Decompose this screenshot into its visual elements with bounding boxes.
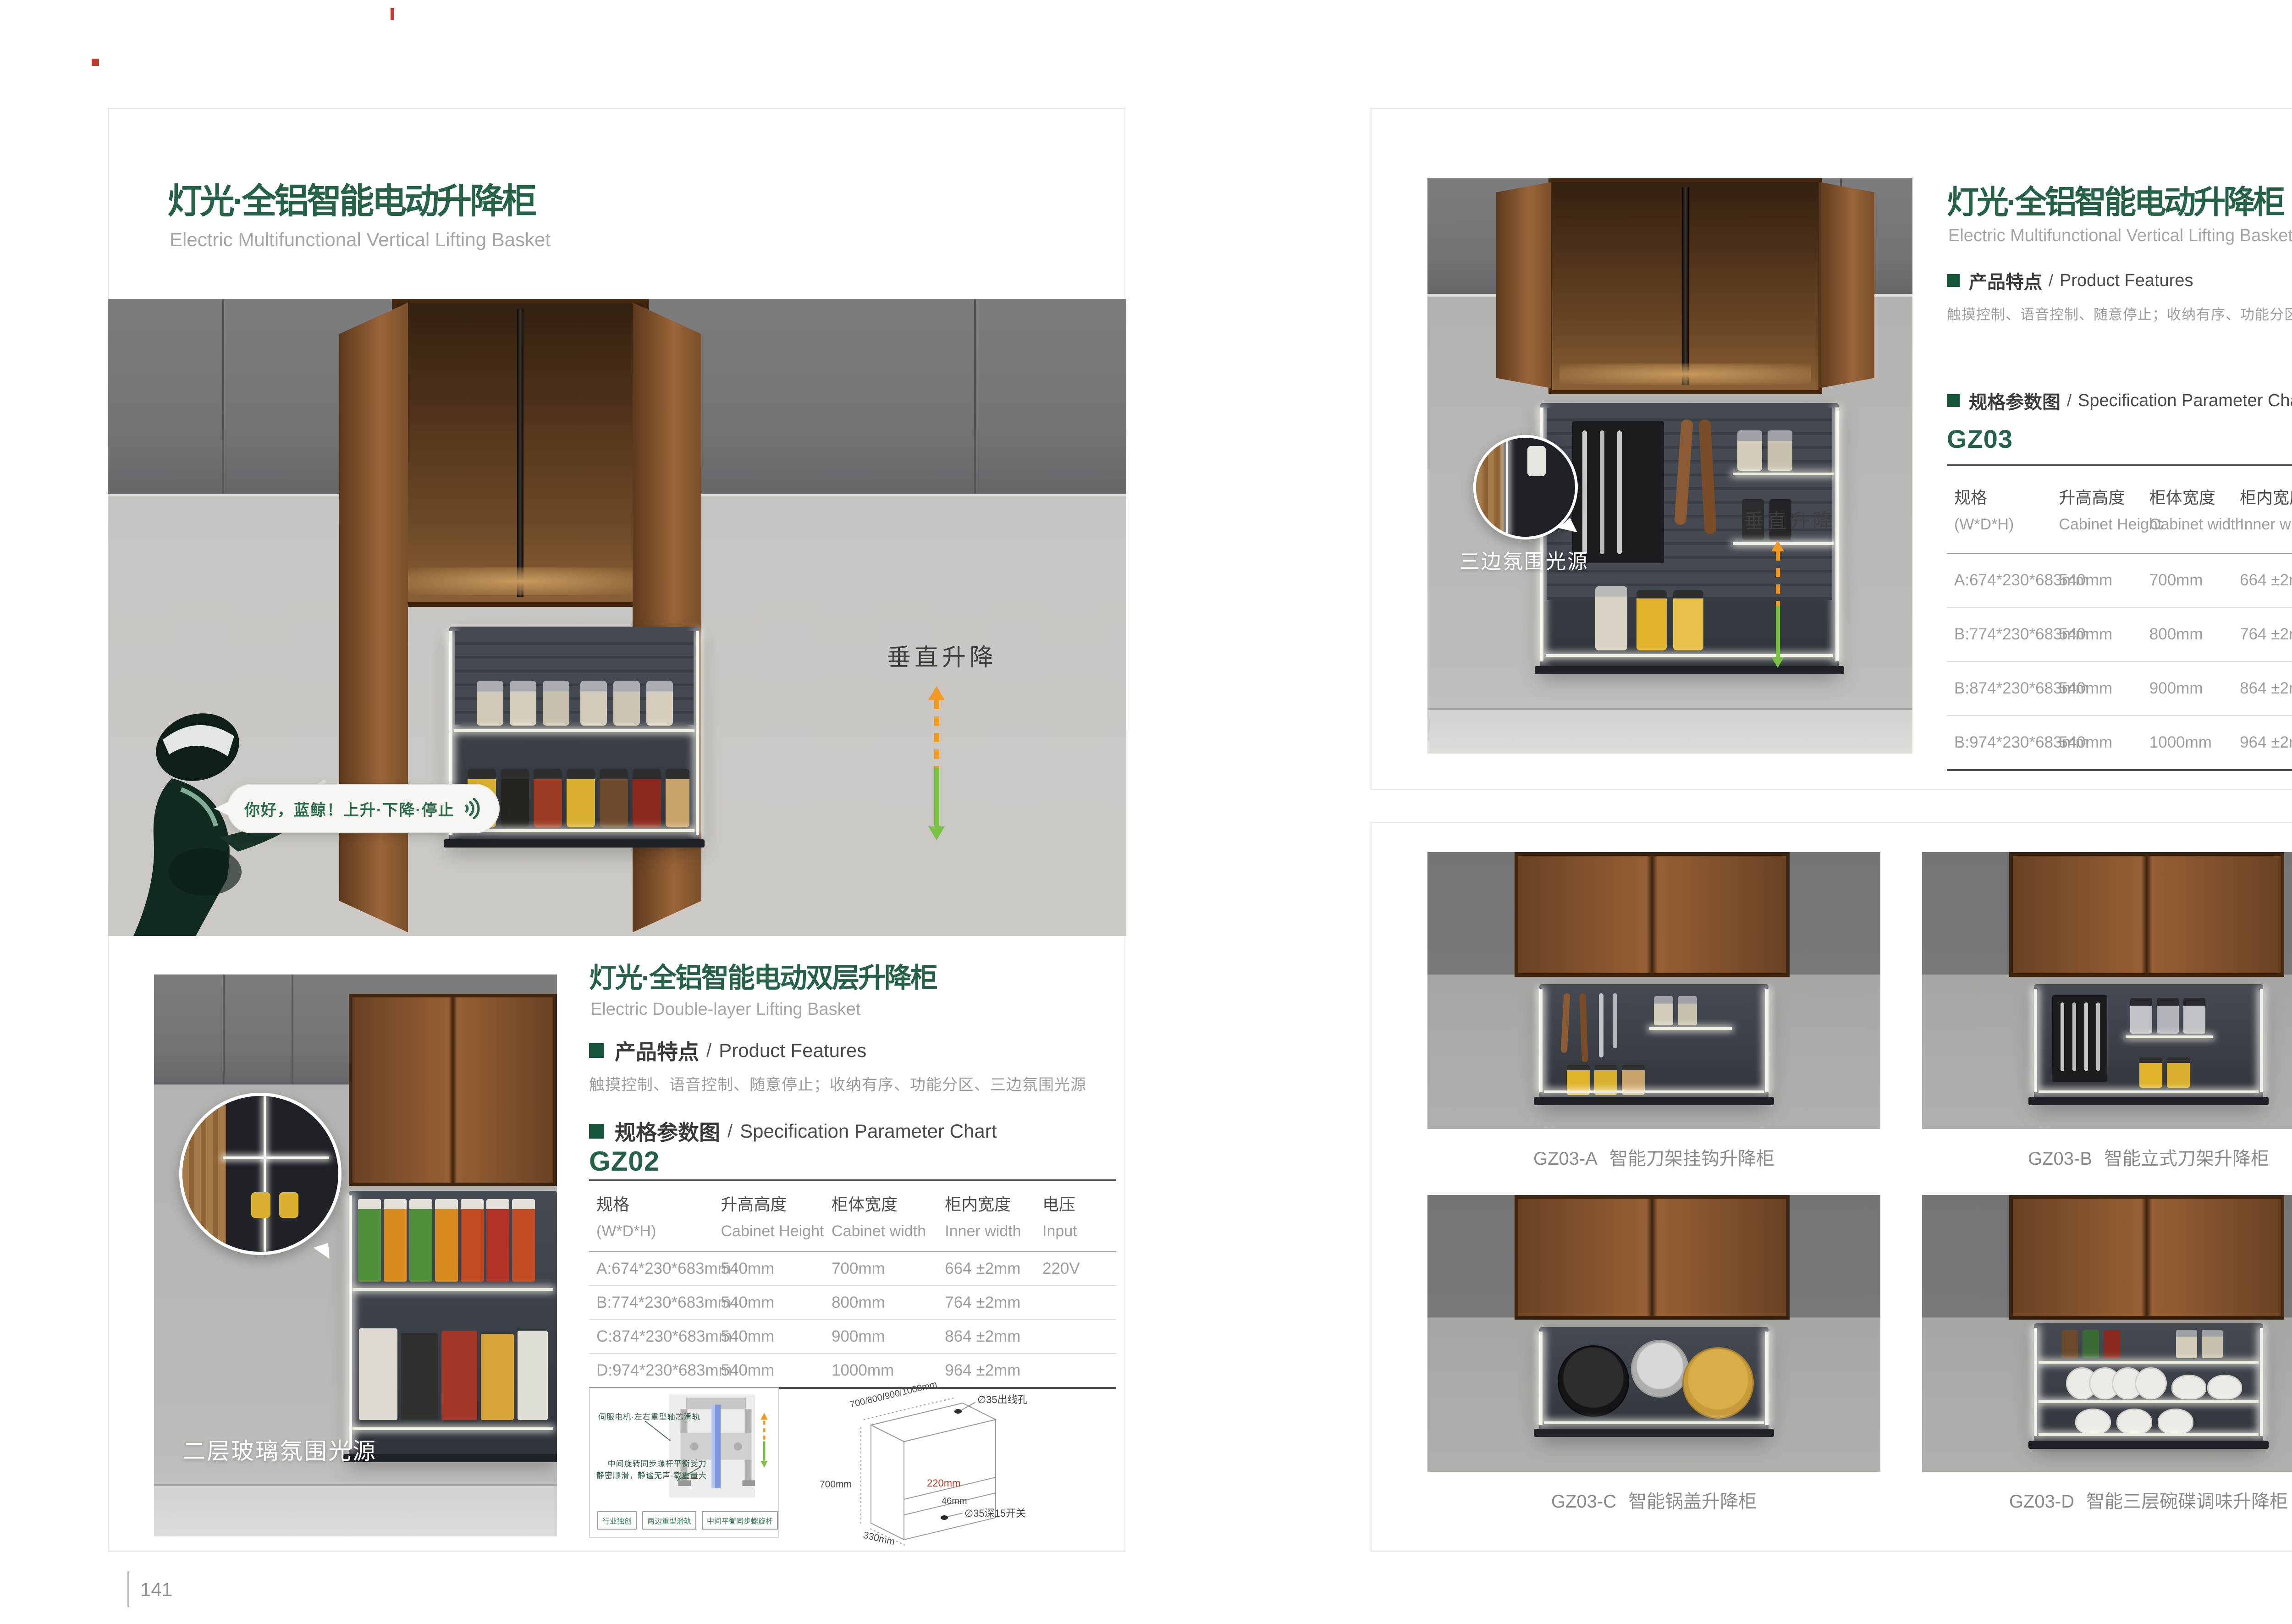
col-header-en: Input (1042, 1222, 1116, 1240)
features-text: 触摸控制、语音控制、随意停止；收纳有序、功能分区、三边氛围光源 (589, 1072, 1086, 1095)
glass-shelf (454, 829, 694, 832)
canister (2157, 998, 2179, 1034)
spice-jar (1654, 996, 1673, 1025)
table-header-row: 规格(W*D*H) 升高高度Cabinet Height 柜体宽度Cabinet… (589, 1180, 1116, 1252)
green-square-icon (1947, 394, 1960, 407)
rack-base (2028, 1441, 2269, 1449)
light-strip (696, 631, 699, 835)
bronze-glass-cabinet (1515, 852, 1790, 977)
product-photo-gz03-c (1427, 1195, 1880, 1472)
page-title: 灯光·全铝智能电动升降柜 (1947, 176, 2283, 223)
spice-jar (1678, 996, 1697, 1025)
features-heading-en: Product Features (719, 1040, 866, 1062)
juice-carton (486, 1199, 509, 1282)
bottle-detail (1527, 446, 1546, 476)
bowl (2158, 1409, 2193, 1434)
sauce-bottle (2083, 1330, 2099, 1358)
pantry-jar (501, 769, 529, 827)
product-code: GZ03-C (1551, 1492, 1616, 1512)
bowl (2207, 1375, 2242, 1399)
motion-label: 垂直升降 (887, 638, 997, 672)
food-box (401, 1333, 438, 1420)
photo-feature-label: 三边氛围光源 (1460, 545, 1589, 574)
bronze-glass-cabinet (2009, 852, 2284, 977)
pantry-jar (666, 769, 689, 827)
light-strip (2260, 989, 2263, 1092)
model-code: GZ02 (589, 1145, 660, 1177)
page-subtitle: Electric Multifunctional Vertical Liftin… (1948, 226, 2292, 246)
right-page-top-card: 三边氛围光源 垂直升降 灯光·全铝智能电动升降柜 Electric Multif… (1371, 108, 2292, 790)
lift-basket (1539, 984, 1769, 1100)
section-subtitle: Electric Double-layer Lifting Basket (590, 1000, 860, 1019)
spice-jar (2202, 1330, 2223, 1358)
juice-carton (512, 1199, 535, 1282)
light-line (1506, 438, 1508, 537)
col-header: 柜体宽度 (832, 1191, 945, 1215)
dim-switch-hole: ∅35深15开关 (964, 1508, 1026, 1519)
pantry-jar (600, 769, 628, 827)
tag-badge: 两边重型滑轨 (642, 1511, 696, 1530)
juice-carton (409, 1199, 432, 1282)
lift-basket (2034, 984, 2263, 1100)
product-code: GZ03-D (2009, 1492, 2074, 1512)
catalog-spread: 灯光·全铝智能电动升降柜 Electric Multifunctional Ve… (0, 0, 2292, 1624)
cell: 540mm (721, 1252, 832, 1286)
pasta-jar (1673, 590, 1703, 650)
pantry-jar (534, 769, 562, 827)
green-square-icon (589, 1124, 604, 1139)
product-caption: GZ03-A智能刀架挂钩升降柜 (1427, 1144, 1880, 1170)
knife (2072, 1002, 2076, 1071)
cell: A:674*230*683mm (1947, 553, 2059, 607)
pot-lid (1631, 1340, 1689, 1398)
dim-switch-offset: 46mm (942, 1496, 967, 1506)
cabinet-glow (406, 567, 635, 595)
cell: B:974*230*683mm (1947, 716, 2059, 770)
hanging-utensil (1561, 993, 1570, 1053)
wood-panel (182, 1096, 226, 1252)
print-mark (391, 8, 394, 20)
spec-heading-zh: 规格参数图 (615, 1116, 720, 1146)
tag-badge: 行业独创 (597, 1511, 637, 1530)
heading-separator: / (706, 1040, 711, 1061)
heading-separator: / (2067, 391, 2072, 410)
lift-basket (1540, 403, 1839, 669)
glass-shelf (1544, 1421, 1764, 1424)
food-box (481, 1334, 514, 1420)
lift-rod (517, 309, 523, 597)
spice-jar (510, 681, 536, 726)
features-heading: 产品特点 / Product Features (1947, 267, 2193, 294)
green-square-icon (589, 1043, 604, 1058)
cell: 540mm (2059, 607, 2149, 661)
cell: 540mm (2059, 553, 2149, 607)
sound-wave-icon (462, 798, 482, 819)
arrow-down-icon (928, 826, 945, 840)
cell: 900mm (2149, 661, 2240, 716)
product-name: 智能三层碗碟调味升降柜 (2086, 1492, 2288, 1512)
col-header-en: Cabinet width (2149, 516, 2240, 534)
cell: C:874*230*683mm (589, 1320, 721, 1354)
cell: D:974*230*683mm (589, 1354, 721, 1388)
page-number-bar (127, 1571, 129, 1607)
pasta-jar (2139, 1057, 2162, 1088)
canister (1595, 586, 1627, 650)
pantry-jar (633, 769, 661, 827)
cell: 764 ±2mm (2240, 607, 2292, 661)
page-number: 141 (140, 1579, 172, 1601)
cell: B:774*230*683mm (589, 1286, 721, 1320)
lift-rod (1682, 187, 1689, 385)
food-box (441, 1331, 477, 1420)
food-box (359, 1328, 397, 1420)
table-row: B:974*230*683mm540mm1000mm964 ±2mm (1947, 716, 2292, 770)
arrow-down-icon (1771, 657, 1784, 668)
voice-command-bubble: 你好，蓝鲸！上升·下降·停止 (227, 784, 500, 833)
product-photo-gz03-a (1427, 852, 1880, 1129)
cell (1042, 1286, 1116, 1320)
page-subtitle: Electric Multifunctional Vertical Liftin… (170, 229, 551, 251)
countertop (154, 1484, 557, 1536)
knife (2084, 1002, 2088, 1071)
rack-base (1535, 666, 1844, 674)
hanging-knife (1613, 993, 1617, 1048)
left-page-card: 灯光·全铝智能电动升降柜 Electric Multifunctional Ve… (108, 108, 1125, 1552)
light-strip (1765, 1332, 1769, 1425)
light-strip (2034, 989, 2037, 1092)
hanging-knife (1599, 993, 1603, 1057)
photo-feature-label: 二层玻璃氛围光源 (182, 1433, 377, 1466)
spec-heading-zh: 规格参数图 (1969, 387, 2061, 414)
arrow-dash (934, 700, 939, 768)
cabinet-glow (1559, 363, 1811, 385)
spec-heading: 规格参数图 / Specification Parameter Chart (1947, 387, 2292, 414)
glass-shelf (1544, 1090, 1764, 1093)
table-row: A:674*230*683mm540mm700mm664 ±2mm220V (1947, 553, 2292, 607)
table-header-row: 规格(W*D*H) 升高高度Cabinet Height 柜体宽度Cabinet… (1947, 465, 2292, 553)
spice-jar (1737, 430, 1762, 471)
col-header-en: Cabinet Height (2059, 516, 2149, 534)
glass-shelf (2039, 1400, 2259, 1403)
col-header: 柜体宽度 (2149, 484, 2240, 508)
product-name: 智能锅盖升降柜 (1628, 1492, 1757, 1512)
juice-carton (435, 1199, 458, 1282)
light-line (264, 1096, 266, 1252)
section-title: 灯光·全铝智能电动双层升降柜 (589, 956, 937, 996)
col-header: 规格 (596, 1191, 721, 1215)
col-header: 升高高度 (2059, 484, 2149, 508)
col-header: 电压 (1042, 1191, 1116, 1215)
bronze-glass-cabinet (392, 299, 649, 607)
table-row: B:874*230*683mm540mm900mm864 ±2mm (1947, 661, 2292, 716)
light-strip (2034, 1328, 2037, 1436)
knife (2096, 1002, 2100, 1071)
spice-jar (580, 681, 607, 726)
sauce-bottle (2104, 1330, 2120, 1358)
product-photo-gz03-d (1922, 1195, 2292, 1472)
lift-direction-arrow (928, 686, 945, 840)
spice-jar (543, 681, 569, 726)
rack-base (1534, 1429, 1774, 1437)
table-row: A:674*230*683mm540mm700mm664 ±2mm220V (589, 1252, 1116, 1286)
product-code: GZ03-B (2028, 1149, 2092, 1169)
bronze-glass-cabinet (1548, 178, 1822, 394)
table-row: B:774*230*683mm540mm800mm764 ±2mm (1947, 607, 2292, 661)
cabinet-door-right (1819, 182, 1874, 388)
arrow-solid (1776, 606, 1780, 657)
dim-wire-hole: ∅35出线孔 (977, 1394, 1028, 1405)
jar-detail (251, 1192, 270, 1218)
col-header: 规格 (1954, 484, 2059, 508)
plate (2135, 1367, 2167, 1399)
mechanism-tags: 行业独创 两边重型滑轨 中间平衡同步螺旋杆 (597, 1511, 778, 1530)
cell (1042, 1354, 1116, 1388)
double-layer-basket (349, 1191, 557, 1457)
callout-pointer (314, 1243, 333, 1263)
wood-panel (1476, 438, 1504, 537)
canister (2130, 998, 2152, 1034)
juice-carton (461, 1199, 484, 1282)
mechanism-detail-box: 伺服电机·左右重型轴芯滑轨 中间旋转同步螺杆平衡受力 静密顺滑，静谧无声·载重量… (589, 1387, 779, 1538)
light-strip (1765, 989, 1769, 1092)
features-heading-zh: 产品特点 (615, 1035, 699, 1066)
product-caption: GZ03-C智能锅盖升降柜 (1427, 1486, 1880, 1513)
bronze-glass-cabinet (2009, 1195, 2284, 1320)
sauce-bottle (2061, 1330, 2078, 1358)
cell (1042, 1320, 1116, 1354)
lift-mechanism-drawing (659, 1392, 773, 1502)
glass-shelf (1649, 1027, 1732, 1030)
glass-shelf (454, 729, 694, 732)
bowl (2171, 1375, 2206, 1399)
product-name: 智能刀架挂钩升降柜 (1609, 1149, 1774, 1169)
glass-shelf (1546, 654, 1833, 657)
col-header-en: Cabinet width (832, 1222, 945, 1240)
cell: 964 ±2mm (2240, 716, 2292, 770)
motion-label: 垂直升降 (1744, 505, 1835, 534)
product-code: GZ03-A (1533, 1149, 1598, 1169)
col-header-en: (W*D*H) (596, 1222, 721, 1240)
lift-basket (2034, 1323, 2263, 1443)
voice-command-text: 你好，蓝鲸！上升·下降·停止 (244, 798, 455, 820)
spec-heading: 规格参数图 / Specification Parameter Chart (589, 1116, 997, 1146)
col-header: 柜内宽度 (2240, 484, 2292, 508)
col-header: 升高高度 (721, 1191, 832, 1215)
heading-separator: / (2049, 271, 2053, 290)
col-header-en: Inner width (2240, 516, 2292, 534)
product-caption: GZ03-B智能立式刀架升降柜 (1922, 1144, 2292, 1170)
light-strip (1539, 989, 1543, 1092)
cell: 664 ±2mm (945, 1252, 1042, 1286)
rack-base (1534, 1097, 1774, 1105)
knife (2061, 1002, 2064, 1071)
features-heading: 产品特点 / Product Features (589, 1035, 866, 1066)
pasta-jar (1636, 590, 1667, 650)
glass-shelf (2126, 1035, 2213, 1038)
col-header: 柜内宽度 (945, 1191, 1042, 1215)
pantry-jar (567, 769, 595, 827)
rack-base (444, 839, 705, 848)
gz03-spec-table: 规格(W*D*H) 升高高度Cabinet Height 柜体宽度Cabinet… (1947, 464, 2292, 771)
spec-heading-en: Specification Parameter Chart (740, 1120, 997, 1142)
bronze-glass-cabinet (1515, 1195, 1790, 1320)
pasta-jar (2167, 1057, 2190, 1088)
cabinet-seam (223, 974, 225, 1085)
cell: 664 ±2mm (2240, 553, 2292, 607)
lift-basket (1539, 1327, 1769, 1432)
spice-jar (646, 681, 673, 726)
col-header-en: (W*D*H) (1954, 516, 2059, 534)
knife (1582, 430, 1587, 554)
lift-direction-arrow (1771, 540, 1784, 668)
dim-clearance: 220mm (927, 1477, 960, 1489)
light-strip (1539, 1332, 1543, 1425)
cell: 1000mm (2149, 716, 2240, 770)
table-row: B:774*230*683mm540mm800mm764 ±2mm (589, 1286, 1116, 1320)
mechanism-callout-line: 中间旋转同步螺杆平衡受力 (596, 1458, 707, 1470)
cell: 220V (1042, 1252, 1116, 1286)
table-row: C:874*230*683mm540mm900mm864 ±2mm (589, 1320, 1116, 1354)
glass-shelf (353, 1427, 553, 1430)
cell: 864 ±2mm (945, 1320, 1042, 1354)
cell: 540mm (721, 1320, 832, 1354)
countertop (1427, 708, 1912, 754)
vertical-lift-product-photo: 三边氛围光源 垂直升降 (1427, 178, 1912, 754)
hero-kitchen-photo: 你好，蓝鲸！上升·下降·停止 垂直升降 (108, 299, 1126, 936)
arrow-up-icon (928, 686, 945, 700)
arrow-solid (934, 768, 939, 826)
hanging-utensil (1579, 993, 1588, 1062)
print-mark (92, 59, 99, 66)
green-square-icon (1947, 274, 1960, 287)
juice-carton (358, 1199, 381, 1282)
cell: 700mm (832, 1252, 945, 1286)
cell: 764 ±2mm (945, 1286, 1042, 1320)
mechanism-callout: 中间旋转同步螺杆平衡受力 静密顺滑，静谧无声·载重量大 (596, 1458, 707, 1482)
cabinet-dimension-diagram: 700/800/900/1000mm ∅35出线孔 700mm 220mm 46… (807, 1379, 1048, 1549)
cell: 800mm (2149, 607, 2240, 661)
glass-shelf (353, 1288, 553, 1291)
product-name: 智能立式刀架升降柜 (2104, 1149, 2269, 1169)
spec-heading-en: Specification Parameter Chart (2078, 391, 2292, 411)
heading-separator: / (727, 1121, 733, 1142)
product-caption: GZ03-D智能三层碗碟调味升降柜 (1922, 1486, 2292, 1513)
cell: 540mm (2059, 661, 2149, 716)
spice-jar (1768, 430, 1792, 471)
glass-shelf (1733, 473, 1834, 475)
jar-detail (279, 1192, 298, 1218)
features-heading-zh: 产品特点 (1969, 267, 2042, 294)
cell: 800mm (832, 1286, 945, 1320)
dim-height: 700mm (820, 1479, 852, 1490)
detail-callout-circle (179, 1093, 342, 1255)
glass-shelf (2039, 1361, 2259, 1364)
spice-jar (613, 681, 640, 726)
rack-base (2028, 1097, 2269, 1105)
knife (1617, 430, 1622, 554)
bowl (2075, 1409, 2111, 1434)
page-title: 灯光·全铝智能电动升降柜 (167, 173, 534, 223)
light-strip (349, 1195, 352, 1449)
gold-pan (1682, 1347, 1754, 1419)
glass-shelf (2039, 1090, 2259, 1093)
cabinet-seam (292, 974, 293, 1085)
arrow-dash (1776, 551, 1780, 606)
cell: B:774*230*683mm (1947, 607, 2059, 661)
spice-jar (2176, 1330, 2197, 1358)
cabinet-door-left (1496, 182, 1551, 388)
right-page-grid-card: GZ03-A智能刀架挂钩升降柜 (1371, 822, 2292, 1552)
pan (1558, 1345, 1629, 1417)
cell: 540mm (2059, 716, 2149, 770)
double-layer-product-photo: 二层玻璃氛围光源 (154, 974, 557, 1536)
cabinet-seam (974, 299, 976, 494)
light-strip (1835, 407, 1839, 661)
glass-shelf (2039, 1433, 2259, 1436)
features-text: 触摸控制、语音控制、随意停止；收纳有序、功能分区、三边氛围光源 (1947, 303, 2292, 324)
tag-badge: 中间平衡同步螺旋杆 (702, 1511, 778, 1530)
bowl (2116, 1409, 2152, 1434)
bronze-glass-cabinet (349, 994, 557, 1186)
arrow-up-icon (1771, 540, 1784, 551)
spice-jar (477, 681, 503, 726)
gz02-spec-table: 规格(W*D*H) 升高高度Cabinet Height 柜体宽度Cabinet… (589, 1179, 1116, 1389)
cabinet-seam (222, 299, 224, 494)
col-header-en: Inner width (945, 1222, 1042, 1240)
features-heading-en: Product Features (2060, 271, 2193, 291)
mechanism-callout: 伺服电机·左右重型轴芯滑轨 (598, 1410, 700, 1422)
cell: 540mm (721, 1286, 832, 1320)
cell: 900mm (832, 1320, 945, 1354)
light-strip (2260, 1328, 2263, 1436)
food-box (518, 1331, 548, 1420)
knife (1600, 430, 1604, 554)
cell: 864 ±2mm (2240, 661, 2292, 716)
col-header-en: Cabinet Height (721, 1222, 832, 1240)
light-line (223, 1156, 329, 1159)
product-photo-gz03-b (1922, 852, 2292, 1129)
cell: B:874*230*683mm (1947, 661, 2059, 716)
juice-carton (384, 1199, 407, 1282)
canister (2183, 998, 2205, 1034)
model-code: GZ03 (1947, 424, 2013, 454)
cell: A:674*230*683mm (589, 1252, 721, 1286)
cell: 700mm (2149, 553, 2240, 607)
